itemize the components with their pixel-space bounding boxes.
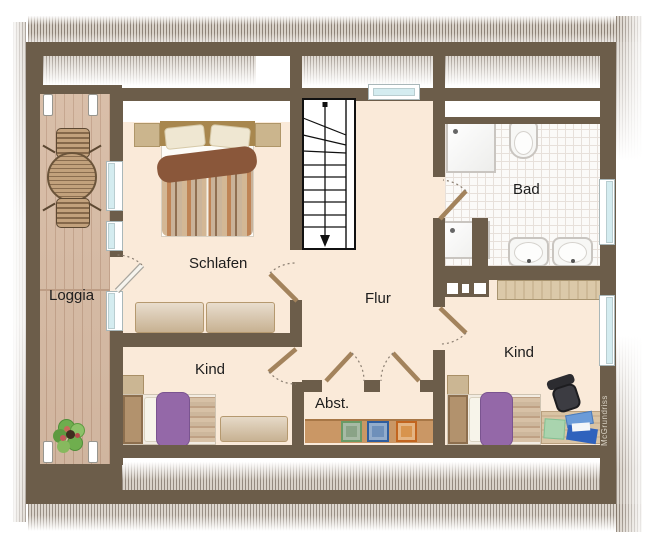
flur-south-stub: [364, 380, 380, 392]
window-kind-right: [599, 295, 615, 366]
loggia-table: [47, 152, 97, 202]
shelf-box: [474, 283, 486, 294]
sink: [508, 237, 549, 267]
shelf-box: [447, 283, 458, 294]
roof-hatch-left: [13, 22, 26, 522]
room-label-flur: Flur: [365, 290, 391, 307]
bad-partition-stub: [472, 218, 488, 268]
kids-nightstand: [447, 375, 469, 395]
skylight-glass: [373, 88, 415, 96]
inner-wall-top: [122, 88, 600, 101]
staircase: [302, 98, 356, 250]
window-glass: [606, 297, 613, 364]
shelf-box: [462, 284, 469, 293]
roof-hatch-top-inner: [40, 56, 600, 88]
knee-wall-strip-bad: [445, 101, 600, 117]
window-glass: [606, 181, 613, 243]
outer-wall-top: [26, 42, 616, 56]
wall-west-mullion: [110, 250, 123, 257]
pillow: [164, 124, 206, 150]
loggia-post: [43, 94, 53, 116]
shower-drain: [450, 228, 455, 233]
roof-hatch-bottom-outer: [28, 504, 642, 532]
window-glass: [108, 293, 115, 329]
inner-wall-bottom: [110, 445, 616, 458]
toilet-bowl: [514, 131, 533, 155]
window-glass: [108, 163, 115, 209]
sink-drain: [527, 259, 531, 263]
wall-shelf-unit: [443, 280, 489, 297]
wall-west: [110, 88, 123, 162]
corner-block-top-left: [26, 56, 43, 88]
bad-wall-north: [445, 117, 600, 124]
plant-leaf: [57, 440, 70, 453]
outer-wall-left: [26, 42, 40, 504]
washer-blue: [367, 421, 389, 442]
room-label-loggia: Loggia: [49, 287, 94, 304]
roof-hatch-bottom-inner: [110, 458, 616, 490]
roof-connector: [290, 56, 302, 88]
nightstand: [255, 123, 281, 147]
desk-paper-white: [572, 422, 591, 431]
washer-green: [341, 421, 362, 442]
room-label-kind-left: Kind: [195, 361, 225, 378]
kind-right-wall-west: [433, 350, 445, 445]
skylight-window: [368, 84, 420, 100]
loggia-post: [43, 441, 53, 463]
plant-berry: [75, 433, 80, 438]
shower: [446, 122, 496, 173]
divider-schlafen-kind: [110, 333, 302, 347]
sideboard: [206, 302, 275, 333]
roof-hatch-top-outer: [28, 16, 642, 42]
kids-dresser: [220, 416, 288, 442]
shower-drain: [453, 129, 458, 134]
plant-berry: [60, 435, 66, 441]
bad-wall-west-upper: [433, 88, 445, 177]
kids-purple-duvet: [480, 392, 513, 447]
kids-purple-duvet: [156, 392, 190, 447]
loggia-chair-bottom: [56, 198, 90, 228]
watermark-text: McGrundriss: [600, 382, 614, 446]
toilet: [509, 121, 538, 159]
window-schlafen-2: [106, 221, 123, 251]
bad-wall-west-lower: [433, 218, 445, 307]
window-schlafen-1: [106, 161, 123, 211]
room-label-schlafen: Schlafen: [189, 255, 247, 272]
loggia-post: [88, 94, 98, 116]
kids-bed-headboard: [123, 395, 143, 444]
plant-center: [66, 430, 75, 439]
room-label-bad: Bad: [513, 181, 540, 198]
desk-mat-green: [543, 418, 565, 439]
window-bad: [599, 179, 615, 245]
abst-wall-top-left: [302, 380, 322, 392]
roof-hatch-right: [616, 16, 642, 532]
knee-wall-strip-schlafen: [123, 101, 290, 122]
bad-wall-south: [433, 266, 600, 280]
roof-connector: [433, 56, 445, 88]
sink-drain: [571, 259, 575, 263]
window-glass: [108, 223, 115, 249]
loggia-post: [88, 441, 98, 463]
washer-orange: [396, 421, 417, 442]
room-label-kind-right: Kind: [504, 344, 534, 361]
sink: [552, 237, 593, 267]
wardrobe: [497, 280, 601, 300]
loggia-parapet-bottom: [26, 464, 122, 492]
room-label-abstellraum: Abst.: [315, 395, 349, 412]
window-schlafen-3: [106, 291, 123, 331]
outer-wall-bottom: [26, 490, 616, 504]
kids-bed-stripes: [512, 397, 540, 442]
sideboard: [135, 302, 204, 333]
kids-bed-stripes: [189, 397, 215, 442]
stair-wall: [290, 88, 302, 250]
kids-bed-headboard: [448, 395, 468, 444]
dormer-gap: [256, 56, 290, 88]
floor-plan: Loggia Schlafen Flur Bad Kind Kind Abst.…: [0, 0, 650, 539]
kids-nightstand: [122, 375, 144, 395]
nightstand: [134, 123, 160, 147]
